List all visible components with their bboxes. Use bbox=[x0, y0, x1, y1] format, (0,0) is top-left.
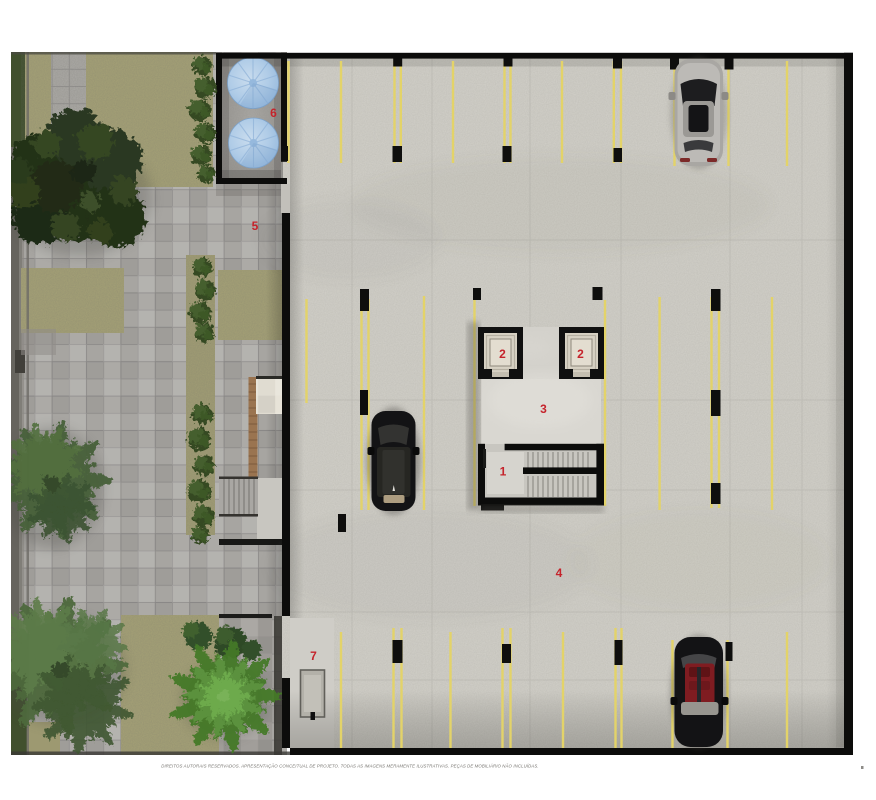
svg-text:3: 3 bbox=[540, 402, 547, 416]
svg-text:DIREITOS AUTORAIS RESERVADOS.: DIREITOS AUTORAIS RESERVADOS. APRESENTAÇ… bbox=[161, 764, 538, 769]
svg-text:4: 4 bbox=[556, 566, 563, 580]
svg-text:7: 7 bbox=[310, 649, 317, 663]
svg-text:2: 2 bbox=[577, 347, 584, 361]
svg-text:6: 6 bbox=[270, 106, 277, 120]
svg-text:5: 5 bbox=[252, 219, 259, 233]
svg-text:2: 2 bbox=[499, 347, 506, 361]
svg-text:1: 1 bbox=[500, 465, 507, 479]
